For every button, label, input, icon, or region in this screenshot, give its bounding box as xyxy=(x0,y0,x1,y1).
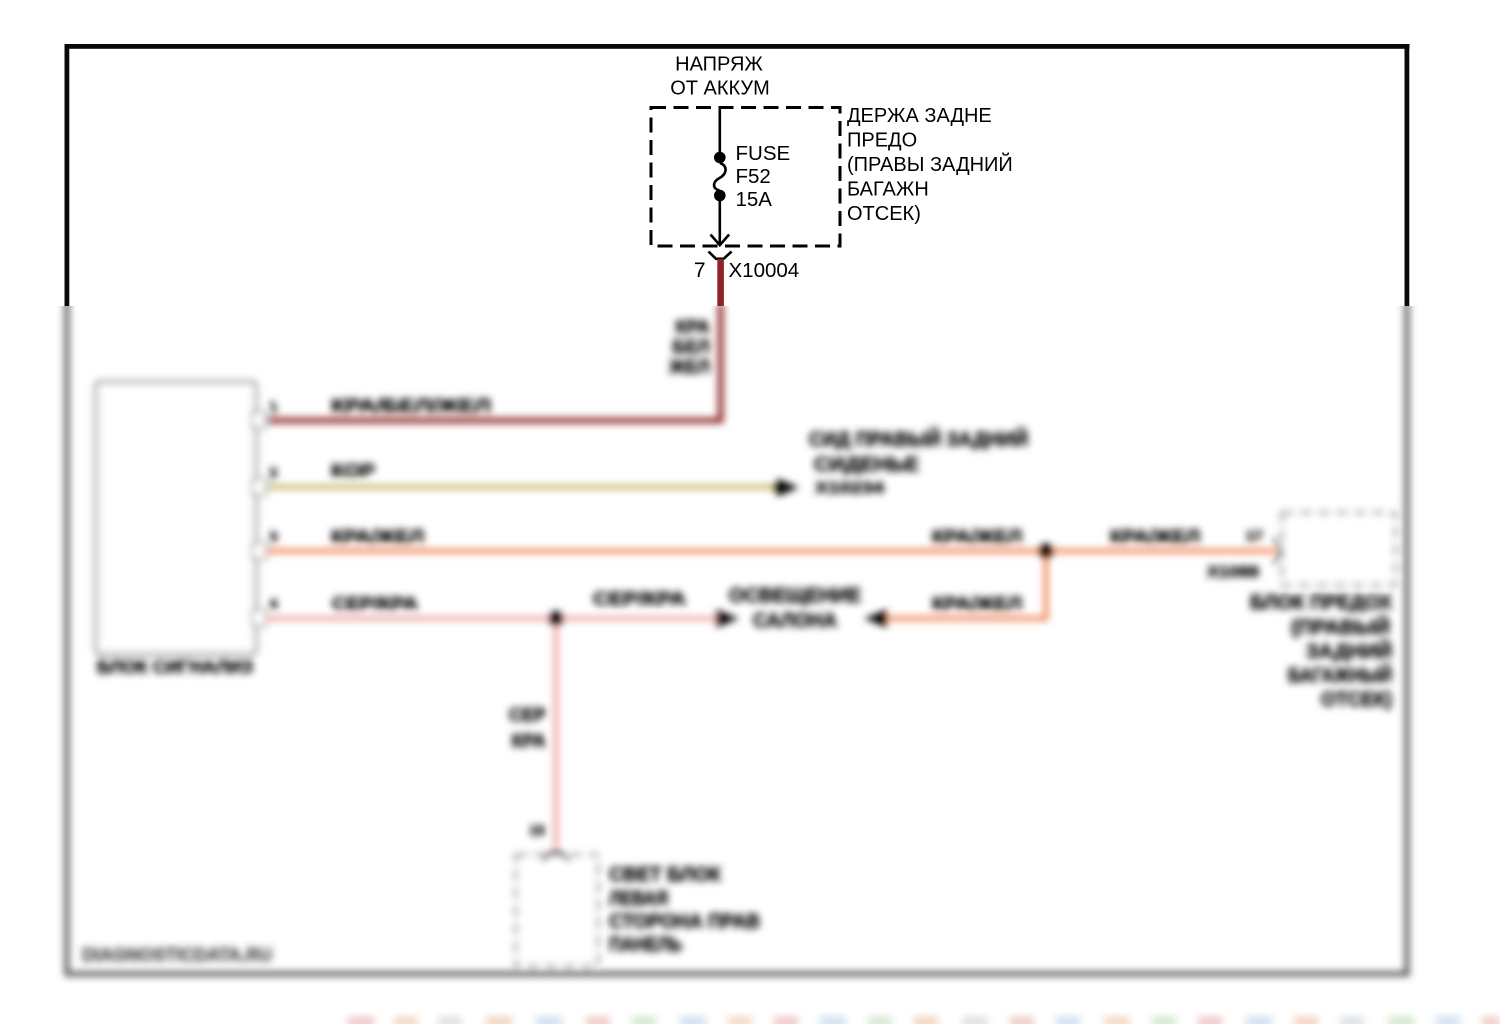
svg-text:ОТСЕК): ОТСЕК) xyxy=(847,203,921,225)
svg-text:КРА/ЖЕЛ: КРА/ЖЕЛ xyxy=(1110,527,1200,547)
svg-text:ДЕРЖА ЗАДНЕ: ДЕРЖА ЗАДНЕ xyxy=(847,105,992,127)
svg-text:X10234: X10234 xyxy=(815,480,884,497)
svg-text:ПРЕДО: ПРЕДО xyxy=(847,130,917,152)
svg-text:ЛЕВАЯ: ЛЕВАЯ xyxy=(609,888,668,910)
svg-text:СИД ПРАВЫЙ ЗАДНИЙ: СИД ПРАВЫЙ ЗАДНИЙ xyxy=(809,427,1028,451)
svg-text:X10004: X10004 xyxy=(729,259,800,282)
svg-text:ЖЕЛ: ЖЕЛ xyxy=(668,357,710,377)
svg-text:БЛОК СИГНАЛИЗ: БЛОК СИГНАЛИЗ xyxy=(97,657,253,678)
svg-text:СИДЕНЬЕ: СИДЕНЬЕ xyxy=(814,454,919,476)
svg-text:СВЕТ БЛОК: СВЕТ БЛОК xyxy=(609,864,722,886)
svg-text:КРА/БЕЛ/ЖЕЛ: КРА/БЕЛ/ЖЕЛ xyxy=(331,396,491,416)
svg-text:НАПРЯЖ: НАПРЯЖ xyxy=(675,54,763,76)
svg-text:DIAGNOSTICDATA.RU: DIAGNOSTICDATA.RU xyxy=(82,945,272,965)
svg-text:17: 17 xyxy=(1246,528,1263,545)
svg-text:FUSE: FUSE xyxy=(736,142,791,165)
svg-text:X1088: X1088 xyxy=(1207,564,1259,581)
svg-text:КРА/ЖЕЛ: КРА/ЖЕЛ xyxy=(331,527,424,547)
svg-text:15A: 15A xyxy=(736,188,773,211)
svg-text:КРА/ЖЕЛ: КРА/ЖЕЛ xyxy=(932,594,1022,614)
svg-text:САЛОНА: САЛОНА xyxy=(753,610,837,632)
svg-text:ОТСЕК): ОТСЕК) xyxy=(1321,689,1392,711)
svg-text:БЕЛ: БЕЛ xyxy=(672,337,710,357)
svg-text:СТОРОНА ПРАВ: СТОРОНА ПРАВ xyxy=(609,911,760,933)
svg-text:СЕР/КРА: СЕР/КРА xyxy=(332,594,418,614)
svg-text:СЕР/КРА: СЕР/КРА xyxy=(593,589,686,609)
svg-text:2: 2 xyxy=(269,465,277,482)
svg-text:7: 7 xyxy=(694,259,706,282)
svg-text:4: 4 xyxy=(269,596,278,613)
svg-text:БАГАЖНЫЙ: БАГАЖНЫЙ xyxy=(1288,663,1392,687)
svg-text:КРА: КРА xyxy=(512,731,546,751)
svg-text:ЗАДНИЙ: ЗАДНИЙ xyxy=(1306,639,1392,663)
svg-text:СЕР: СЕР xyxy=(509,705,546,725)
svg-text:(ПРАВЫ ЗАДНИЙ: (ПРАВЫ ЗАДНИЙ xyxy=(847,152,1013,176)
svg-text:БЛОК ПРЕДОХ: БЛОК ПРЕДОХ xyxy=(1250,592,1393,614)
svg-text:КРА/ЖЕЛ: КРА/ЖЕЛ xyxy=(932,527,1022,547)
svg-text:БАГАЖН: БАГАЖН xyxy=(847,179,929,201)
svg-text:ПАНЕЛЬ: ПАНЕЛЬ xyxy=(609,934,682,956)
svg-text:ОСВЕЩЕНИЕ: ОСВЕЩЕНИЕ xyxy=(729,585,861,607)
svg-text:F52: F52 xyxy=(736,165,771,188)
svg-text:КРА: КРА xyxy=(676,317,710,337)
svg-text:ОТ АККУМ: ОТ АККУМ xyxy=(670,78,770,100)
svg-text:(ПРАВЫЙ: (ПРАВЫЙ xyxy=(1291,615,1390,639)
svg-text:1: 1 xyxy=(269,399,277,416)
svg-text:КОР: КОР xyxy=(331,461,375,481)
svg-text:15: 15 xyxy=(529,822,545,838)
svg-text:3: 3 xyxy=(269,529,277,546)
